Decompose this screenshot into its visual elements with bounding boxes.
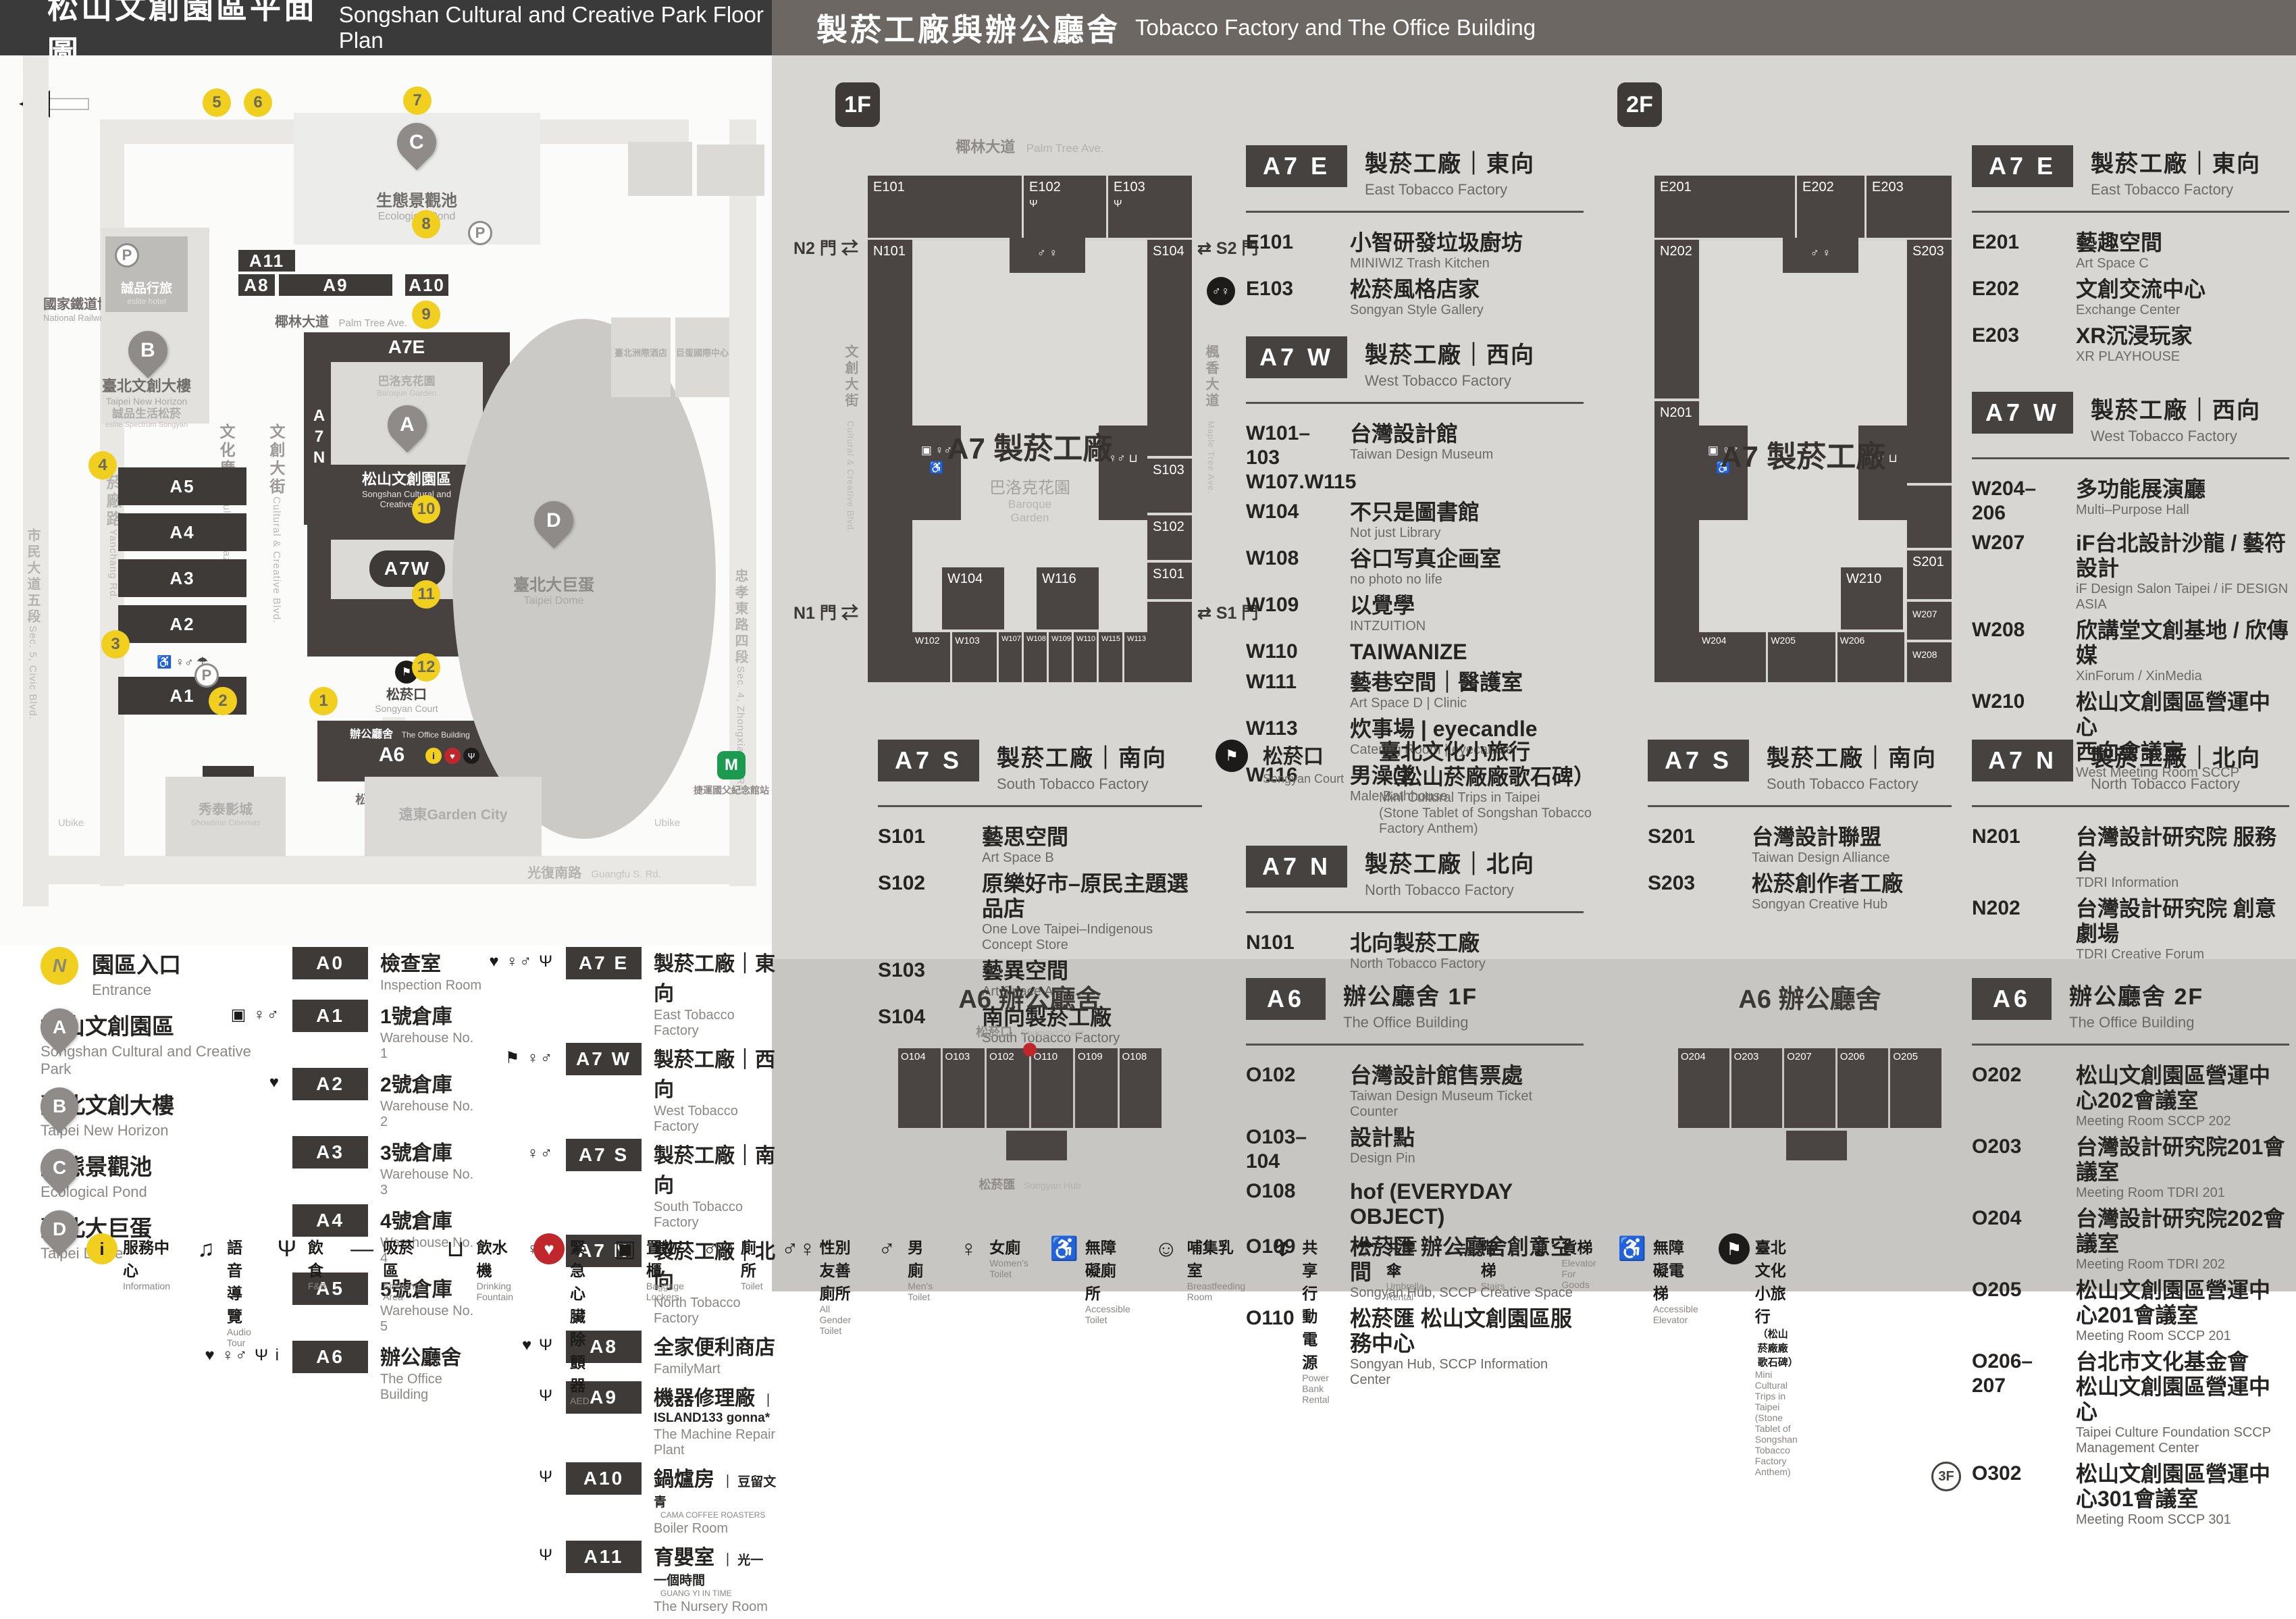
legend-strip-item: i 服務中心 Information [86, 1233, 170, 1291]
badge-a11: A11 [238, 250, 295, 272]
directory-entry: 3F O302 松山文創園區營運中心301會議室Meeting Room SCC… [1972, 1462, 2289, 1528]
mrt-icon: M [717, 751, 746, 779]
amenity-top: ♂ ♀ [1783, 238, 1858, 273]
road-civic-blvd [23, 55, 49, 906]
directory-entry: O202 松山文創園區營運中心202會議室Meeting Room SCCP 2… [1972, 1063, 2289, 1129]
directory-entry: ♂♀ E103 松菸風格店家Songyan Style Gallery [1246, 277, 1584, 318]
building-badge: A3 [292, 1136, 368, 1168]
dome-intl-label: 巨蛋國際中心 [676, 346, 729, 359]
room-o103: O103 [943, 1048, 985, 1128]
legend-building-row: ⚑ ♀♂ A7 W 製菸工廠｜西向 West Tobacco Factory [466, 1043, 777, 1135]
room-w109: W109 [1049, 632, 1072, 682]
room-e202: E202 [1797, 176, 1864, 238]
room-n101: N101 [868, 240, 912, 682]
strip-icon: — [346, 1233, 377, 1264]
entrance-12: 12 [412, 653, 440, 682]
bottom-rooms-2f: W204 W205 W206 [1699, 632, 1904, 682]
legend-strip-item: ♥ 緊急心臟除顫器 AED [533, 1233, 590, 1406]
building-block [697, 145, 764, 196]
legend-marker: N [41, 947, 78, 985]
building-block [628, 142, 692, 196]
room-w208: W208 [1907, 642, 1952, 682]
legend-strip-item: Ψ 飲食 F&B [271, 1233, 326, 1291]
gate-n2: N2 門 ⇄ [793, 235, 858, 259]
legend-building-row: ♥ A2 2號倉庫Warehouse No. 2 [192, 1068, 483, 1130]
amenity-icons: ♥ [192, 1068, 280, 1092]
songyan-court-entry: ⚑ 松菸口Songyan Court 臺北文化小旅行（松山菸廠廠歌石碑） Min… [1216, 740, 1594, 837]
building-badge: A7 S [566, 1139, 642, 1171]
room-n201: N201 [1654, 401, 1699, 682]
strip-icon: i [86, 1233, 118, 1264]
section-a7w-2f: A7 W 製菸工廠｜西向West Tobacco Factory W204–20… [1972, 392, 2289, 786]
street-guangfu: 光復南路 Guangfu S. Rd. [527, 862, 661, 881]
room-o204: O204 [1678, 1048, 1729, 1128]
legend-building-row: ♥ ♀♂ Ψ A7 E 製菸工廠｜東向 East Tobacco Factory [466, 947, 777, 1039]
street-palm: 椰林大道 Palm Tree Ave. [275, 311, 407, 330]
badge-a8: A8 [238, 274, 275, 296]
section-badge: A7 W [1246, 336, 1347, 378]
aed-dot [1023, 1043, 1037, 1056]
room-o102: O102 [987, 1048, 1029, 1128]
entrance-6: 6 [244, 88, 272, 117]
fnb-icon: Ψ [463, 748, 479, 764]
strip-icon: ♂♀ [704, 1233, 735, 1264]
directory-entry: S203 松菸創作者工廠Songyan Creative Hub [1648, 871, 1952, 913]
directory-entry: W111 藝巷空間｜醫護室Art Space D | Clinic [1246, 670, 1584, 711]
room-s103: S103 [1147, 459, 1192, 513]
a6-stub [1786, 1131, 1847, 1160]
entrance-5: 5 [203, 88, 231, 117]
section-badge: A7 S [1648, 740, 1749, 781]
section-a7n-2f: A7 N 製菸工廠｜北向North Tobacco Factory N201 台… [1972, 740, 2289, 968]
plan1f-street-right: 楓香大道 Maple Tree Ave. [1201, 344, 1221, 494]
legend-strip-item: ♂♀ 廁所 Toilet [704, 1233, 763, 1291]
directory-entry: S201 台灣設計聯盟Taiwan Design Alliance [1648, 825, 1952, 866]
floor-plan-poster: { "left": { "header": {"zh": "松山文創園區平面圖"… [0, 0, 2296, 1291]
directory-entry: O108 hof (EVERYDAY OBJECT) [1246, 1179, 1584, 1229]
room-w115: W115 [1099, 632, 1122, 682]
plan1f-center: A7 製菸工廠 巴洛克花園 Baroque Garden [947, 424, 1112, 525]
plan1f-street-top: 椰林大道 Palm Tree Ave. [956, 135, 1103, 157]
right-panel-header: 製菸工廠與辦公廳舍 Tobacco Factory and The Office… [772, 0, 2296, 55]
section-a7w-1f: A7 W 製菸工廠｜西向West Tobacco Factory W101–10… [1246, 336, 1584, 810]
left-title-en: Songshan Cultural and Creative Park Floo… [339, 2, 772, 53]
amenity-icons [192, 1136, 280, 1141]
legend-building-row: Ψ A11 育嬰室光一 一個時間 GUANG YI IN TIME The Nu… [466, 1541, 777, 1615]
section-badge: A7 E [1972, 145, 2073, 187]
directory-entry: O206–207 台北市文化基金會松山文創園區營運中心Taipei Cultur… [1972, 1350, 2289, 1456]
room-n202: N202 [1654, 240, 1699, 399]
directory-entry: O109 松菸匯 辦公廳舍創意空間Songyan Hub, SCCP Creat… [1246, 1235, 1584, 1301]
room-e101: E101 [868, 176, 1022, 238]
section-badge: A7 N [1246, 846, 1347, 888]
map-court-label: 松菸口 Songyan Court [375, 684, 438, 714]
parking-icon: P [468, 221, 492, 245]
parking-icon: P [194, 663, 219, 688]
legend-strip-item: ▣ 置物櫃 Baggage Lockers [610, 1233, 684, 1302]
map-a7w-label: A7W [369, 550, 445, 587]
entrance-11: 11 [412, 580, 440, 609]
badge-a3: A3 [118, 559, 246, 597]
room-o109: O109 [1075, 1048, 1118, 1128]
section-a7s-2f: A7 S 製菸工廠｜南向South Tobacco Factory S201 台… [1648, 740, 1952, 918]
office-building-block: 辦公廳舍 The Office Building A6 i ♥ Ψ [317, 721, 503, 781]
eslite-hotel-label: 誠品行旅 eslite hotel [121, 278, 172, 306]
a6-stub [1006, 1131, 1067, 1160]
room-w205: W205 [1768, 632, 1835, 682]
dome-label: 臺北大巨蛋 Taipei Dome [513, 571, 594, 607]
a6-court-label: 松菸口 Songyan Court [976, 1023, 1084, 1040]
a6-plan-1f: A6 辦公廳舍 松菸口 Songyan Court O104 O103 O102… [841, 978, 1219, 1262]
entrance-7: 7 [403, 86, 432, 115]
strip-icon: Ψ [271, 1233, 303, 1264]
street-cc-blvd: 文創大街Cultural & Creative Blvd. [265, 423, 288, 623]
room-o108: O108 [1120, 1048, 1162, 1128]
legend-building-row: A0 檢查室Inspection Room [192, 947, 483, 994]
room-w116: W116 [1037, 567, 1099, 629]
room-w104: W104 [942, 567, 1004, 629]
directory-entry: W101–103W107.W115 台灣設計館Taiwan Design Mus… [1246, 421, 1584, 494]
street-civic: 市民大道五段Sec. 5, Civic Blvd. [23, 528, 43, 720]
garden-city-label: 遠東Garden City [398, 804, 507, 824]
section-badge: A7 S [878, 740, 979, 781]
ubike-label: Ubike [654, 817, 680, 829]
amenity-icons: Ψ [466, 1541, 554, 1565]
amenity-icons: ▣ ♀♂ [192, 1000, 280, 1025]
a6-plan-title: A6 辦公廳舍 [1738, 978, 1881, 1015]
entrance-4: 4 [88, 451, 117, 480]
room-w103: W103 [952, 632, 997, 682]
entrance-10: 10 [412, 495, 440, 523]
room-s101: S101 [1147, 563, 1192, 599]
directory-entry: O203 台灣設計研究院201會議室Meeting Room TDRI 201 [1972, 1135, 2289, 1201]
building-badge: A2 [292, 1068, 368, 1100]
directory-entry: W110 TAIWANIZE [1246, 640, 1584, 665]
building-badge: A7 E [566, 947, 642, 979]
floor-plan-1f: 椰林大道 Palm Tree Ave. E101 E102Ψ E103Ψ N2 … [841, 135, 1219, 729]
strip-icon: ♫ [190, 1233, 221, 1264]
badge-a4: A4 [118, 513, 246, 551]
room-w102: W102 [912, 632, 950, 682]
room-w204: W204 [1699, 632, 1766, 682]
room-w113: W113 [1124, 632, 1147, 682]
directory-entry: O110 松菸匯 松山文創園區服務中心Songyan Hub, SCCP Inf… [1246, 1306, 1584, 1388]
section-badge: A7 N [1972, 740, 2073, 781]
directory-entry: O204 台灣設計研究院202會議室Meeting Room TDRI 202 [1972, 1206, 2289, 1273]
section-a7n-1f: A7 N 製菸工廠｜北向North Tobacco Factory N101 北… [1246, 846, 1584, 977]
directory-entry: O102 台灣設計館售票處Taiwan Design Museum Ticket… [1246, 1063, 1584, 1120]
eslite-spectrum-label: 誠品生活松菸 eslite Spectrum Songyan [105, 404, 188, 429]
parking-icon: P [115, 243, 139, 267]
building-badge: A11 [566, 1541, 642, 1573]
amenity-icons: ⚑ ♀♂ [466, 1043, 554, 1068]
section-badge: A6 [1972, 978, 2052, 1020]
amenity-legend-strip: i 服務中心 Information ♫ 語音導覽 Audio Tour Ψ 飲… [86, 1233, 1342, 1477]
directory-entry: N201 台灣設計研究院 服務台TDRI Information [1972, 825, 2289, 891]
entrance-8: 8 [412, 210, 440, 238]
directory-entry: E203 XR沉浸玩家XR PLAYHOUSE [1972, 324, 2289, 365]
badge-a5: A5 [118, 467, 246, 505]
legend-building-row: ▣ ♀♂ A1 1號倉庫Warehouse No. 1 [192, 1000, 483, 1062]
room-o205: O205 [1890, 1048, 1941, 1128]
room-e102: E102Ψ [1024, 176, 1106, 238]
legend-strip-item: — 吸菸區 Smoking Area [346, 1233, 419, 1302]
room-o206: O206 [1837, 1048, 1889, 1128]
building-badge: A7 W [566, 1043, 642, 1075]
map-a6-label: A6 [379, 744, 405, 767]
floor-plan-2f: E201 E202 E203 N202 N201 S203 S201 W207 … [1627, 135, 1965, 729]
a6-plan-title: A6 辦公廳舍 [958, 978, 1101, 1015]
a6-hub-label: 松菸匯 Songyan Hub [979, 1175, 1080, 1193]
directory-entry: W104 不只是圖書館Not just Library [1246, 500, 1584, 541]
room-e103: E103Ψ [1108, 176, 1192, 238]
entrance-1: 1 [309, 687, 338, 715]
room-w107: W107 [999, 632, 1022, 682]
legend-strip-item: ⊔ 飲水機 Drinking Fountain [440, 1233, 513, 1302]
showtime-label: 秀泰影城 Showtime Cinemas [190, 798, 260, 827]
section-badge: A7 W [1972, 392, 2073, 434]
room-w207: W207 [1907, 602, 1952, 640]
section-a7e-2f: A7 E 製菸工廠｜東向East Tobacco Factory E201 藝趣… [1972, 145, 2289, 370]
plan1f-street-left: 文創大街 Cultural & Creative Blvd. [841, 344, 860, 534]
room-s104: S104 [1147, 240, 1192, 456]
a6-rooms-1f: O104 O103 O102 O110 O109 O108 [898, 1048, 1162, 1128]
amenity-icons: ♥ ♀♂ Ψ [466, 947, 554, 971]
room-o203: O203 [1731, 1048, 1783, 1128]
map-a7n-label: A7N [309, 407, 328, 469]
left-panel-header: 松山文創園區平面圖 Songshan Cultural and Creative… [0, 0, 772, 55]
directory-entry: E101 小智研發垃圾廚坊MINIWIZ Trash Kitchen [1246, 230, 1584, 272]
amenity-icons: ♀♂ [466, 1139, 554, 1163]
plan2f-center: A7 製菸工廠 [1721, 432, 1885, 476]
room-w108: W108 [1024, 632, 1047, 682]
aed-icon: ♥ [444, 748, 461, 764]
directory-entry: W204–206 多功能展演廳Multi–Purpose Hall [1972, 477, 2289, 525]
section-a7e-1f: A7 E 製菸工廠｜東向East Tobacco Factory E101 小智… [1246, 145, 1584, 324]
right-bar-end [1147, 602, 1192, 682]
room-w110: W110 [1074, 632, 1097, 682]
section-a6-2f: A6 辦公廳舍 2FThe Office Building O202 松山文創園… [1972, 978, 2289, 1533]
mrt-label: 捷運國父紀念館站 [694, 783, 769, 797]
directory-entry: O205 松山文創園區營運中心201會議室Meeting Room SCCP 2… [1972, 1278, 2289, 1344]
walk-icon: ⚑ [1216, 740, 1248, 772]
directory-entry: N202 台灣設計研究院 創意劇場TDRI Creative Forum [1972, 896, 2289, 962]
amenity-top: ♂ ♀ [1010, 238, 1085, 273]
strip-icon: ▣ [610, 1233, 641, 1264]
strip-icon: ♂♀ [783, 1233, 814, 1264]
room-e203: E203 [1867, 176, 1952, 238]
room-e201: E201 [1654, 176, 1795, 238]
room-w210: W210 [1841, 567, 1903, 629]
entrance-3: 3 [101, 630, 130, 659]
directory-entry: W208 欣講堂文創基地 / 欣傳媒XinForum / XinMedia [1972, 618, 2289, 684]
directory-entry: S102 原樂好市–原民主題選品店One Love Taipei–Indigen… [878, 871, 1202, 953]
directory-entry: W207 iF台北設計沙龍 / 藝符設計iF Design Salon Taip… [1972, 531, 2289, 613]
legend-strip-item: ♫ 語音導覽 Audio Tour [190, 1233, 251, 1348]
building-badge: A1 [292, 1000, 368, 1032]
room-s102: S102 [1147, 515, 1192, 560]
a6-plan-2f: A6 辦公廳舍 O204 O203 O207 O206 O205 [1621, 978, 1999, 1262]
legend-building-row: A3 3號倉庫Warehouse No. 3 [192, 1136, 483, 1198]
info-icon: i [425, 748, 442, 764]
directory-entry: N101 北向製菸工廠North Tobacco Factory [1246, 931, 1584, 972]
section-badge: A7 E [1246, 145, 1347, 187]
badge-a9: A9 [279, 274, 392, 296]
a6-rooms-2f: O204 O203 O207 O206 O205 [1678, 1048, 1941, 1128]
right-bar-mid [1907, 486, 1952, 548]
building-badge: A0 [292, 947, 368, 979]
map-a7e-label: A7E [388, 336, 425, 358]
building-badge: A4 [292, 1204, 368, 1237]
park-map: 國家鐵道博物館 National Railway Museum C 生態景觀池E… [0, 55, 772, 946]
entry-icon: ♂♀ [1207, 277, 1235, 305]
section-a6-1f: A6 辦公廳舍 1FThe Office Building O102 台灣設計館… [1246, 978, 1584, 1393]
amenity-icons [192, 947, 280, 952]
right-title-en: Tobacco Factory and The Office Building [1135, 15, 1536, 41]
badge-a2: A2 [118, 605, 246, 643]
directory-entry: E202 文創交流中心Exchange Center [1972, 277, 2289, 318]
amenity-icons [192, 1204, 280, 1210]
room-s201: S201 [1907, 550, 1952, 599]
floor-badge-2f: 2F [1617, 82, 1662, 127]
floor-prefix: 3F [1931, 1462, 1961, 1491]
strip-icon: ⊔ [440, 1233, 471, 1264]
directory-entry: E201 藝趣空間Art Space C [1972, 230, 2289, 272]
directory-entry: W109 以覺學INTZUITION [1246, 593, 1584, 634]
floor-badge-1f: 1F [835, 82, 880, 127]
map-office-label: 辦公廳舍 The Office Building [350, 725, 470, 741]
entrance-2: 2 [209, 687, 237, 715]
room-o104: O104 [898, 1048, 941, 1128]
legend-strip-item: ⚑ 臺北文化小旅行（松山菸廠廠歌石碑） Mini Cultural Trips … [1719, 1233, 1798, 1477]
room-o110: O110 [1031, 1048, 1074, 1128]
strip-icon: ♥ [533, 1233, 565, 1264]
legend-building-row: ♀♂ A7 S 製菸工廠｜南向 South Tobacco Factory [466, 1139, 777, 1231]
badge-a10: A10 [405, 274, 448, 296]
room-o207: O207 [1784, 1048, 1835, 1128]
gate-n1: N1 門 ⇄ [793, 600, 858, 624]
section-badge: A6 [1246, 978, 1326, 1020]
new-horizon-label: 臺北文創大樓 Taipei New Horizon [102, 374, 191, 407]
right-title-zh: 製菸工廠與辦公廳舍 [816, 5, 1120, 50]
room-s203: S203 [1907, 240, 1952, 483]
bottom-rooms-1f: W102 W103 W107 W108 W109 W110 W115 W113 [912, 632, 1147, 682]
entrance-9: 9 [412, 301, 440, 329]
directory-entry: S101 藝思空間Art Space B [878, 825, 1202, 866]
ubike-label: Ubike [58, 817, 84, 829]
intercontinental-label: 臺北洲際酒店 [615, 346, 667, 359]
directory-entry: W108 谷口写真企画室no photo no life [1246, 546, 1584, 588]
map-baroque-label: 巴洛克花園 Baroque Garden [377, 371, 437, 398]
directory-entry: O103–104 設計點Design Pin [1246, 1125, 1584, 1174]
room-w206: W206 [1837, 632, 1904, 682]
